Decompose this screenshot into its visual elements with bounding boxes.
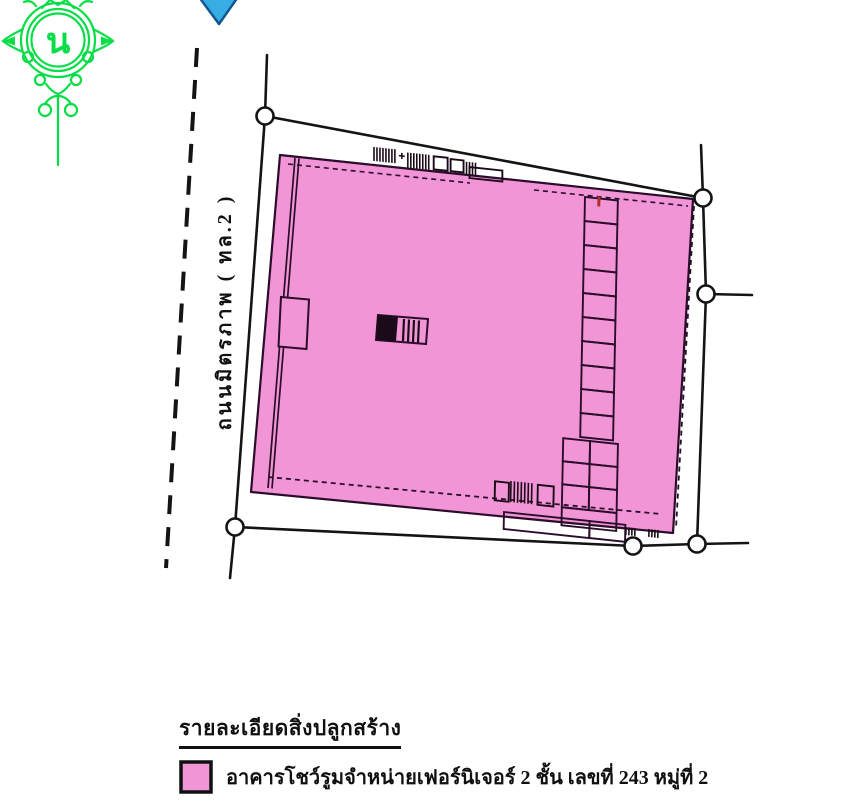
legend-title: รายละเอียดสิ่งปลูกสร้าง bbox=[179, 712, 401, 749]
scanned-survey-page: น ถนนมิตรภาพ ( ทล.2 ) bbox=[0, 0, 857, 808]
central-staircase bbox=[376, 315, 428, 344]
west-annex-room bbox=[279, 297, 310, 349]
legend-item-label: อาคารโชว์รูมจำหน่ายเฟอร์นิเจอร์ 2 ชั้น เ… bbox=[226, 761, 708, 793]
legend-swatch bbox=[179, 760, 213, 794]
seal-letter: น bbox=[46, 21, 71, 61]
legend: รายละเอียดสิ่งปลูกสร้าง อาคารโชว์รูมจำหน… bbox=[179, 712, 819, 794]
survey-marker bbox=[698, 286, 715, 303]
road-label: ถนนมิตรภาพ ( ทล.2 ) bbox=[214, 194, 236, 431]
building-fill bbox=[251, 155, 693, 533]
legend-item: อาคารโชว์รูมจำหน่ายเฟอร์นิเจอร์ 2 ชั้น เ… bbox=[179, 760, 819, 794]
building-footprint bbox=[251, 147, 694, 542]
survey-marker bbox=[625, 538, 642, 555]
north-arrow-icon bbox=[199, 0, 238, 24]
survey-marker bbox=[689, 536, 706, 553]
official-seal: น bbox=[3, 0, 113, 165]
road-centerline bbox=[166, 48, 197, 568]
plot-plan-drawing: น ถนนมิตรภาพ ( ทล.2 ) bbox=[0, 0, 857, 808]
survey-marker bbox=[257, 108, 274, 125]
survey-marker bbox=[695, 190, 712, 207]
survey-marker bbox=[227, 519, 244, 536]
